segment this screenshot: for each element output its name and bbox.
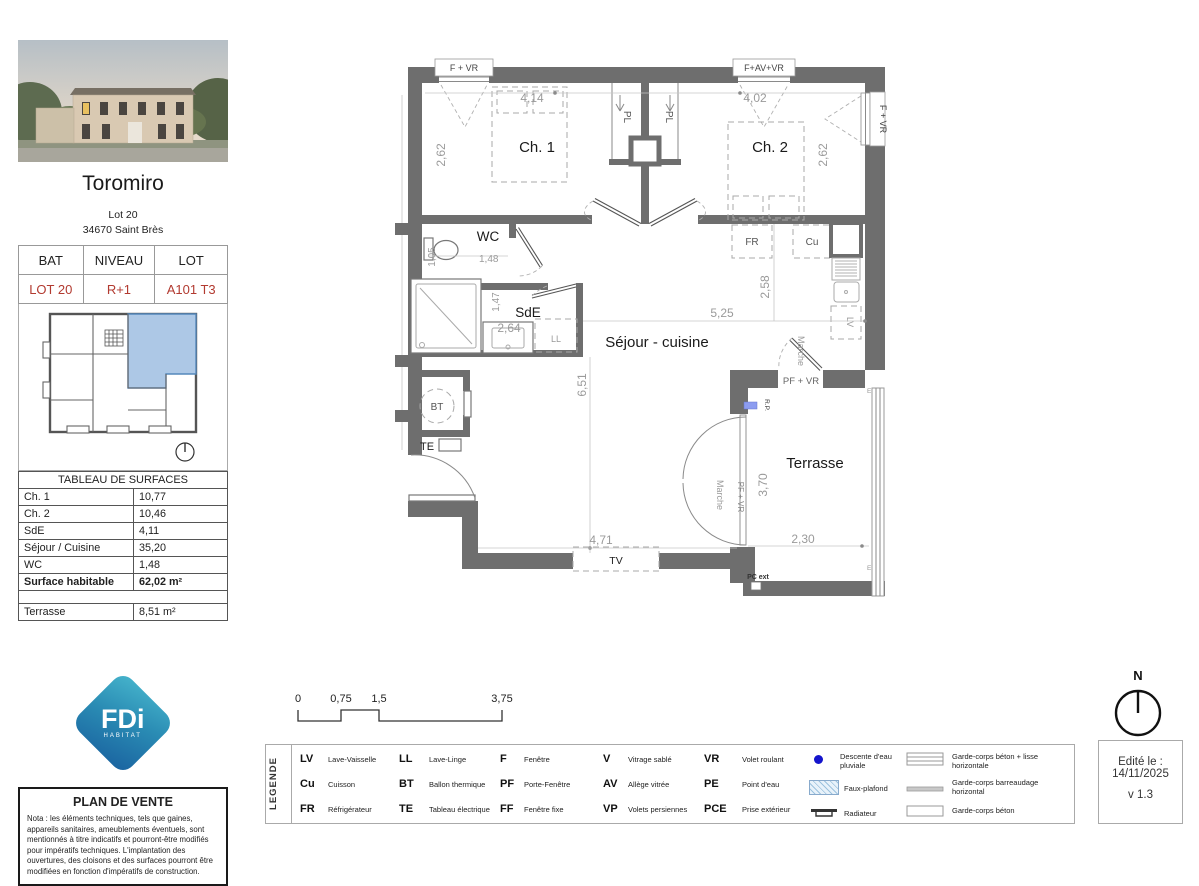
- kitchen-area: FR Cu LV: [732, 223, 861, 339]
- door-kitchen-terrace: Marche PF + VR: [779, 336, 822, 387]
- legend-abbr: PCE: [704, 803, 727, 815]
- electric-panel-label: TE: [420, 441, 434, 453]
- legend-label: Volet roulant: [742, 756, 850, 765]
- legend-title: LEGENDE: [268, 757, 279, 810]
- table-row: Ch. 110,77: [19, 489, 228, 506]
- edited-label: Edité le :: [1099, 756, 1182, 768]
- legend-abbr: VR: [704, 753, 719, 765]
- dim-kitchen-depth: 2,58: [758, 275, 772, 299]
- key-plan-box: [18, 304, 228, 471]
- legend-abbr: VP: [603, 803, 618, 815]
- e-mark: E: [867, 565, 872, 572]
- legend-abbr: Cu: [300, 778, 315, 790]
- surface-table-spacer: [18, 591, 228, 603]
- legend-label: Descente d'eau pluviale: [840, 753, 902, 771]
- radiator-icon: [809, 806, 839, 824]
- dim-wc-depth: 1,05: [427, 247, 438, 267]
- window-label: F + VR: [878, 105, 888, 134]
- rp-label: R.P.: [763, 399, 770, 411]
- legend-label: Garde-corps barreaudage horizontal: [952, 779, 1060, 797]
- legend-label: Réfrigérateur: [328, 806, 436, 815]
- room-label-terrasse: Terrasse: [786, 455, 844, 472]
- fdi-logo-subtext: HABITAT: [101, 733, 145, 739]
- closet-label: PL: [663, 111, 674, 124]
- dim-sejour-width: 5,25: [710, 306, 734, 320]
- scale-bar: 0 0,75 1,5 3,75: [288, 688, 518, 730]
- legend-abbr: V: [603, 753, 610, 765]
- dim-sejour-bottom: 4,71: [589, 533, 613, 547]
- rp-marker: [744, 402, 757, 409]
- room-labels: Ch. 1 Ch. 2 WC SdE Séjour - cuisine: [477, 139, 788, 351]
- guardrail: [872, 388, 884, 596]
- legend-label: Allège vitrée: [628, 781, 736, 790]
- dim-terrasse-width: 2,30: [791, 532, 815, 546]
- edition-box: Edité le : 14/11/2025 v 1.3: [1098, 740, 1183, 824]
- plan-de-vente-nota: Nota : les éléments techniques, tels que…: [27, 814, 219, 877]
- fdi-logo-diamond: FDi HABITAT: [71, 671, 176, 776]
- room-label-sde: SdE: [515, 305, 541, 320]
- window-right: F + VR: [825, 92, 888, 146]
- dim-ch1-width: 4,14: [520, 91, 544, 105]
- north-arrow: N: [1105, 665, 1171, 741]
- surface-table-title: TABLEAU DE SURFACES: [19, 472, 228, 489]
- legend-label: Lave-Vaisselle: [328, 756, 436, 765]
- legend-title-cell: LEGENDE: [266, 745, 292, 823]
- sidebar: Toromiro Lot 20 34670 Saint Brès BAT NIV…: [18, 40, 228, 886]
- project-city: 34670 Saint Brès: [18, 224, 228, 236]
- false-ceiling-icon: [809, 780, 839, 795]
- unit-header-lot: LOT: [155, 246, 228, 275]
- fdi-logo-text: FDi: [101, 707, 145, 731]
- guardrail-bars-icon: [906, 781, 944, 799]
- bed-ch2: [728, 122, 804, 220]
- step-label: Marche: [715, 480, 725, 510]
- scale-tick: 3,75: [491, 693, 512, 705]
- legend-abbr: F: [500, 753, 507, 765]
- rain-downpipe-icon: [814, 755, 823, 764]
- step-label: Marche: [796, 336, 806, 366]
- legend-label: Fenêtre: [524, 756, 632, 765]
- key-plan-north-icon: [176, 443, 194, 461]
- room-label-wc: WC: [477, 229, 500, 244]
- dim-sde-width: 2,64: [497, 321, 521, 335]
- window-label: F+AV+VR: [744, 63, 784, 73]
- legend-abbr: TE: [399, 803, 413, 815]
- exterior-socket-label: PC ext: [747, 574, 769, 581]
- guardrail-concrete-icon: [906, 804, 944, 822]
- e-mark: E: [867, 388, 872, 395]
- legend-abbr: LL: [399, 753, 412, 765]
- legend-abbr: BT: [399, 778, 414, 790]
- project-lot: Lot 20: [18, 209, 228, 221]
- room-label-sejour: Séjour - cuisine: [605, 334, 708, 351]
- unit-value-bat: LOT 20: [19, 275, 84, 304]
- legend-abbr: AV: [603, 778, 617, 790]
- legend-label: Cuisson: [328, 781, 436, 790]
- dim-ch1-depth: 2,62: [434, 143, 448, 167]
- terrace-table: Terrasse8,51 m²: [18, 603, 228, 621]
- plan-de-vente-box: PLAN DE VENTE Nota : les éléments techni…: [18, 787, 228, 886]
- neighbour-walls: [395, 95, 408, 450]
- washer-label: LL: [551, 334, 561, 344]
- dim-wc-width: 1,48: [479, 254, 499, 265]
- table-row-terrace: Terrasse8,51 m²: [19, 604, 228, 621]
- dim-terrasse-depth: 3,70: [756, 473, 770, 497]
- key-plan: [19, 304, 227, 468]
- legend-label: Lave-Linge: [429, 756, 537, 765]
- table-row: Séjour / Cuisine35,20: [19, 540, 228, 557]
- legend-label: Tableau électrique: [429, 806, 537, 815]
- window-label: F + VR: [450, 63, 479, 73]
- legend-abbr: PE: [704, 778, 719, 790]
- scale-tick: 1,5: [371, 693, 386, 705]
- unit-table: BAT NIVEAU LOT LOT 20 R+1 A101 T3: [18, 245, 228, 304]
- version: v 1.3: [1099, 789, 1182, 801]
- cooktop-label: Cu: [806, 237, 819, 248]
- fdi-logo: FDi HABITAT: [18, 667, 228, 779]
- legend-abbr: PF: [500, 778, 514, 790]
- sde-area: LL: [411, 279, 577, 353]
- fridge-label: FR: [745, 237, 758, 248]
- legend-label: Ballon thermique: [429, 781, 537, 790]
- legend-label: Garde-corps béton + lisse horizontale: [952, 753, 1060, 771]
- water-heater-label: BT: [431, 402, 444, 413]
- unit-value-niveau: R+1: [83, 275, 155, 304]
- surface-table: TABLEAU DE SURFACES Ch. 110,77 Ch. 210,4…: [18, 471, 228, 591]
- closet-label: PL: [621, 111, 632, 124]
- legend-abbr: FR: [300, 803, 315, 815]
- unit-header-niveau: NIVEAU: [83, 246, 155, 275]
- floor-plan: F + VR F+AV+VR F + VR PL PL: [395, 55, 895, 605]
- legend-abbr: FF: [500, 803, 513, 815]
- edited-date: 14/11/2025: [1099, 768, 1182, 780]
- room-label-ch1: Ch. 1: [519, 139, 555, 156]
- unit-value-lot: A101 T3: [155, 275, 228, 304]
- legend-label: Vitrage sablé: [628, 756, 736, 765]
- legend-label: Garde-corps béton: [952, 807, 1060, 816]
- table-row-total: Surface habitable62,02 m²: [19, 574, 228, 591]
- table-row: WC1,48: [19, 557, 228, 574]
- dim-ch2-depth: 2,62: [816, 143, 830, 167]
- scale-tick: 0,75: [330, 693, 351, 705]
- table-row: SdE4,11: [19, 523, 228, 540]
- door-label: PF + VR: [736, 482, 745, 513]
- legend-box: LEGENDE LV Lave-Vaisselle Cu Cuisson FR …: [265, 744, 1075, 824]
- dishwasher-label: LV: [845, 317, 855, 327]
- dim-sde-depth: 1,47: [491, 292, 502, 312]
- door-label: PF + VR: [783, 376, 819, 387]
- north-label: N: [1133, 668, 1142, 683]
- legend-abbr: LV: [300, 753, 313, 765]
- tv-label: TV: [609, 555, 622, 567]
- scale-tick: 0: [295, 693, 301, 705]
- table-row: Ch. 210,46: [19, 506, 228, 523]
- tv-area: TV: [573, 547, 659, 571]
- dim-sejour-depth: 6,51: [575, 373, 589, 397]
- plan-de-vente-title: PLAN DE VENTE: [27, 795, 219, 809]
- guardrail-concrete-rail-icon: [906, 752, 944, 771]
- room-label-ch2: Ch. 2: [752, 139, 788, 156]
- unit-header-bat: BAT: [19, 246, 84, 275]
- dim-ch2-width: 4,02: [743, 91, 767, 105]
- building-photo: [18, 40, 228, 162]
- project-title: Toromiro: [18, 172, 228, 196]
